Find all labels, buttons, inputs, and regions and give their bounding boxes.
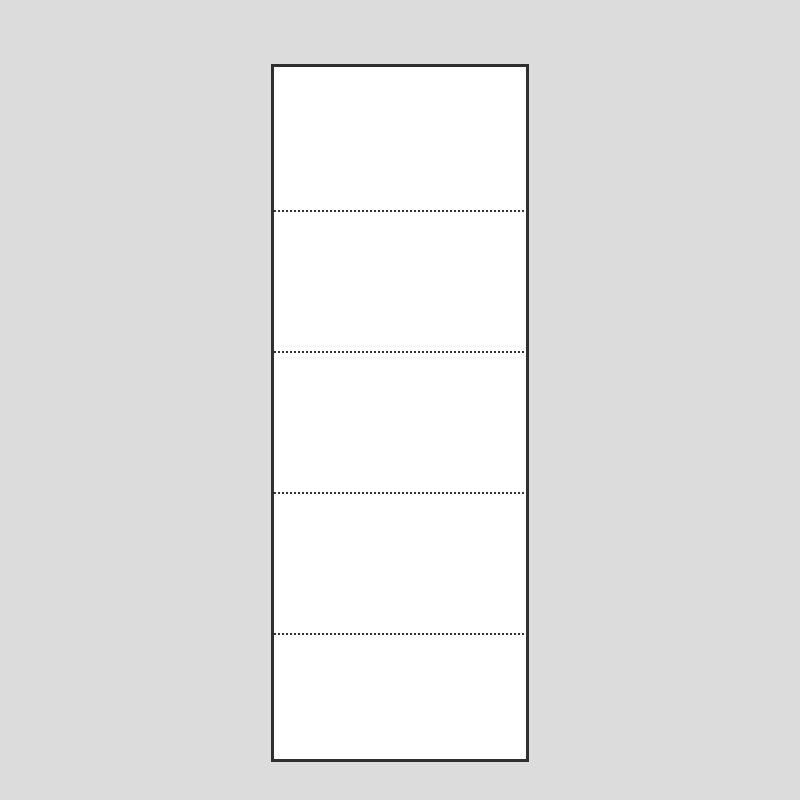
paper-panel	[274, 67, 526, 210]
paper-panel	[274, 212, 526, 351]
paper-panel	[274, 494, 526, 633]
paper-panel	[274, 353, 526, 492]
paper-panel	[274, 635, 526, 759]
perforated-sheet	[271, 64, 529, 762]
diagram-canvas	[0, 0, 800, 800]
